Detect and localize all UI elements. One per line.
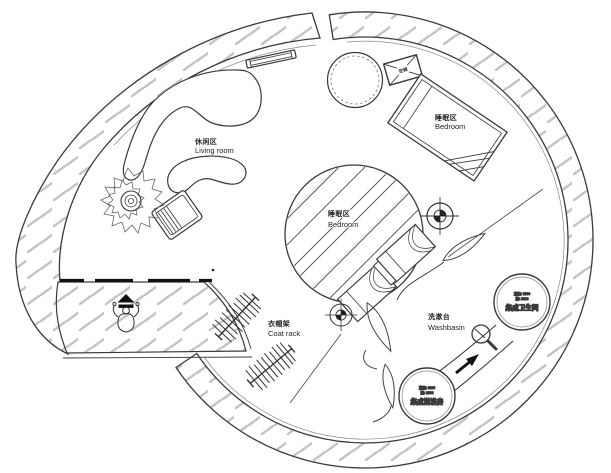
shower-pod-label: 集成淋浴房 [410,397,444,406]
bathroom-pod-label: 集成卫生间 [505,303,539,312]
bathroom-pod-diameter: 直径: 1100 [514,291,530,296]
bedroom-right-label-en: Bedroom [435,122,465,131]
coat-rack-label-zh: 衣帽架 [268,319,290,328]
bedroom-center-label-en: Bedroom [328,220,358,229]
washbasin-label-zh: 洗漱台 [428,312,450,321]
bedroom-right-label-zh: 睡眠区 [435,113,457,122]
round-table [328,53,383,108]
lounge-chair [151,190,203,241]
shower-pod-height: 高: 2100 [420,390,433,395]
floor-plan-canvas: 空调 [0,0,611,473]
bathroom-pod: 直径: 1100 高: 2100 集成卫生间 [494,274,550,330]
bedroom-center-label-zh: 睡眠区 [328,209,350,218]
flow-arrow-icon [456,354,479,373]
shower-pod-diameter: 直径: 1100 [419,385,435,390]
coffee-table [168,156,246,193]
living-room-label-en: Living room [195,146,234,155]
floor-plan-page: 空调 [0,0,611,473]
shower-pod: 直径: 1100 高: 2100 集成淋浴房 [399,368,455,424]
washbasin-label-en: Washbasin [428,323,465,332]
loft-circle [285,165,423,303]
coat-rack-label-en: Coat rack [268,329,300,338]
bathroom-pod-height: 高: 2100 [515,296,528,301]
survey-marker-1 [421,197,459,235]
living-room-label-zh: 休闲区 [194,137,217,146]
reference-dot [212,269,215,272]
